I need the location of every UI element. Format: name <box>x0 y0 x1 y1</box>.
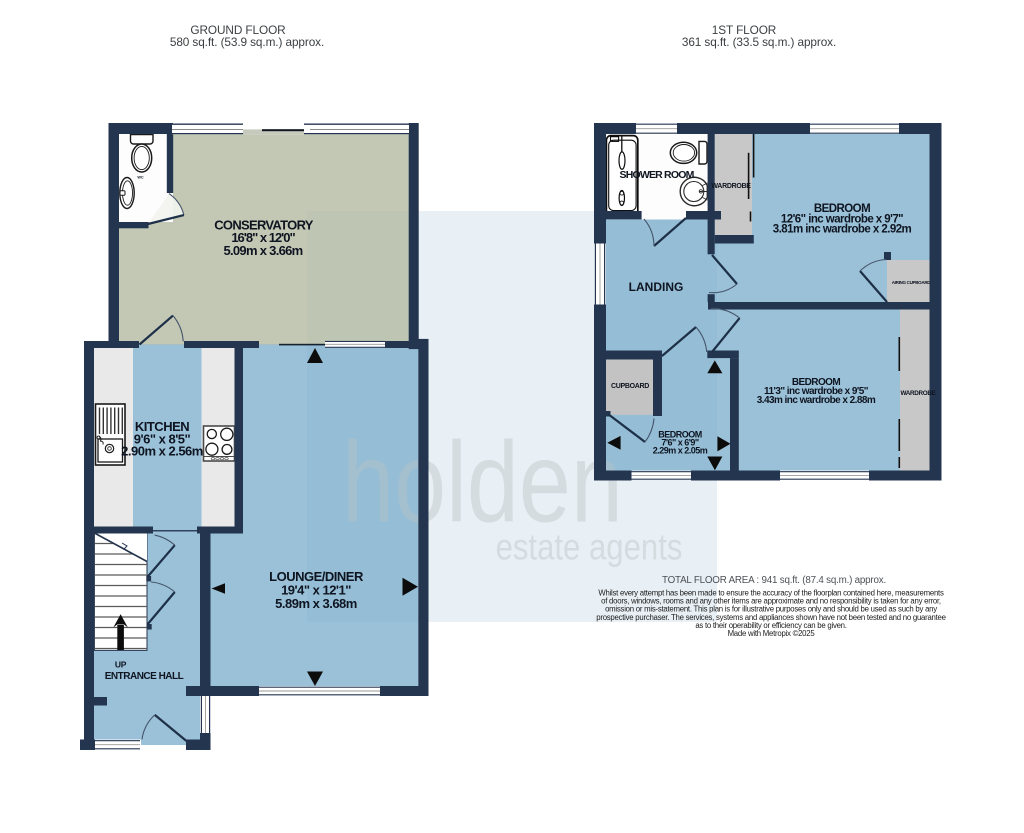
svg-text:WC: WC <box>137 176 144 180</box>
svg-text:CUPBOARD: CUPBOARD <box>611 383 649 390</box>
svg-text:5.89m x 3.68m: 5.89m x 3.68m <box>275 596 357 611</box>
svg-text:AIRING CUPBOARD: AIRING CUPBOARD <box>892 280 932 285</box>
svg-text:580 sq.ft. (53.9 sq.m.) approx: 580 sq.ft. (53.9 sq.m.) approx. <box>170 35 324 49</box>
svg-text:LANDING: LANDING <box>629 280 684 294</box>
svg-text:2.90m x 2.56m: 2.90m x 2.56m <box>121 444 203 459</box>
svg-text:3.43m inc wardrobe x 2.88m: 3.43m inc wardrobe x 2.88m <box>757 395 876 406</box>
svg-text:UP: UP <box>115 660 127 670</box>
svg-text:361 sq.ft. (33.5 sq.m.) approx: 361 sq.ft. (33.5 sq.m.) approx. <box>682 35 836 49</box>
svg-text:3.81m inc wardrobe x 2.92m: 3.81m inc wardrobe x 2.92m <box>773 224 912 236</box>
svg-text:2.29m x 2.05m: 2.29m x 2.05m <box>653 446 708 456</box>
svg-text:WARDROBE: WARDROBE <box>900 390 935 397</box>
svg-text:TOTAL FLOOR AREA : 941 sq.ft.: TOTAL FLOOR AREA : 941 sq.ft. (87.4 sq.m… <box>662 575 886 586</box>
svg-text:estate agents: estate agents <box>496 527 683 568</box>
svg-text:5.09m x 3.66m: 5.09m x 3.66m <box>223 243 302 258</box>
svg-text:SHOWER ROOM: SHOWER ROOM <box>619 169 694 181</box>
svg-text:ENTRANCE HALL: ENTRANCE HALL <box>105 671 184 682</box>
svg-text:WARDROBE: WARDROBE <box>711 183 751 190</box>
svg-text:Made with Metropix ©2025: Made with Metropix ©2025 <box>728 629 816 638</box>
